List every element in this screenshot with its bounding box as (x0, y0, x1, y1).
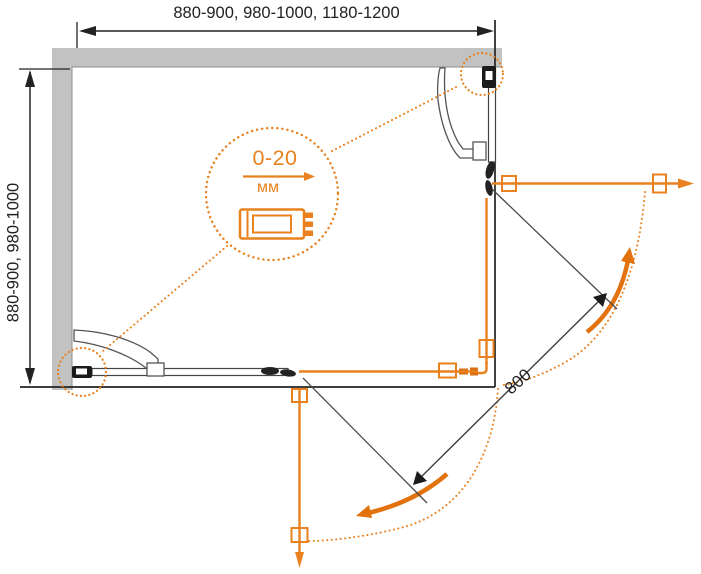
profile-tooth-3 (305, 231, 313, 237)
left-wall (52, 48, 72, 390)
fixed-panels (92, 67, 496, 376)
right-hinge-part-2 (484, 179, 494, 196)
right-support-arm (438, 68, 477, 158)
top-dim-arrow-left (79, 26, 96, 36)
diagram-canvas (0, 0, 701, 574)
profile-tooth-2 (305, 222, 313, 228)
bottom-swing-arrow-head (356, 505, 372, 518)
right-door-swing-arc (503, 192, 645, 385)
left-dim-arrow-top (25, 70, 35, 87)
callout-leader-bottom-left (103, 246, 227, 351)
right-door-radius-line (492, 189, 617, 309)
right-arm-bracket (473, 142, 486, 160)
top-right-pivot-inner (486, 71, 493, 80)
top-dimension (77, 22, 494, 48)
right-swing-arrow-head (621, 247, 635, 264)
profile-outer (240, 210, 304, 239)
adjustment-value-label: 0-20 (238, 146, 312, 171)
bottom-left-pivot-inner (76, 369, 87, 375)
adjustment-unit-label: мм (238, 179, 298, 197)
top-dim-arrow-right (477, 26, 494, 36)
wall-profile-icon (240, 210, 313, 239)
door-width-dimension (303, 189, 617, 503)
dotted-guides (58, 53, 645, 541)
bottom-swing-arrow-shaft (368, 474, 447, 513)
bottom-door-end-cap (295, 552, 304, 568)
bottom-hinge-part-1 (261, 367, 279, 375)
support-arms (74, 68, 486, 376)
bottom-door-radius-line (303, 378, 427, 503)
side-depth-dimension-label: 880-900, 980-1000 (5, 93, 24, 413)
top-width-dimension-label: 880-900, 980-1000, 1180-1200 (80, 4, 493, 23)
bottom-door-swing-arc (306, 389, 498, 541)
doors (292, 175, 695, 569)
bottom-support-arm (74, 330, 158, 368)
shower-enclosure-diagram: 880-900, 980-1000, 1180-1200 880-900, 98… (0, 0, 701, 574)
bottom-fixed-panel (92, 369, 288, 376)
profile-inner (253, 216, 291, 233)
bottom-arm-bracket (147, 363, 164, 376)
profile-tooth-1 (305, 213, 313, 219)
right-door-end-cap (678, 179, 694, 189)
adjustment-arrow-head (304, 172, 315, 181)
pivot-blocks (72, 66, 496, 378)
left-dim-arrow-bottom (25, 368, 35, 385)
top-wall (52, 48, 502, 67)
